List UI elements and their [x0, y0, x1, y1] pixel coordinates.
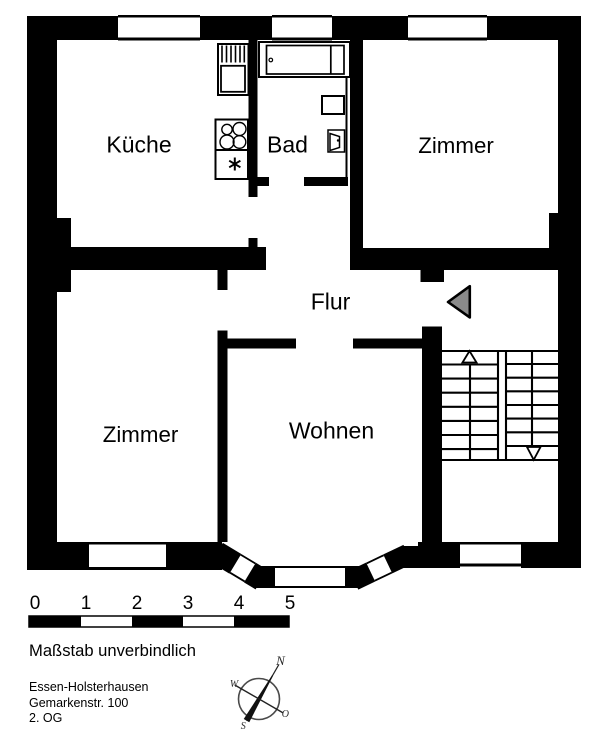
svg-text:N: N	[275, 653, 286, 668]
svg-text:O: O	[282, 709, 289, 720]
svg-text:Essen-Holsterhausen: Essen-Holsterhausen	[29, 680, 149, 694]
svg-text:Zimmer: Zimmer	[103, 422, 179, 447]
svg-text:2. OG: 2. OG	[29, 711, 62, 725]
svg-text:Bad: Bad	[267, 132, 308, 158]
svg-text:3: 3	[183, 593, 194, 614]
svg-text:Gemarkenstr. 100: Gemarkenstr. 100	[29, 696, 128, 710]
svg-text:2: 2	[132, 593, 143, 614]
svg-text:Maßstab unverbindlich: Maßstab unverbindlich	[29, 641, 196, 660]
svg-text:Wohnen: Wohnen	[289, 418, 374, 444]
svg-text:Zimmer: Zimmer	[418, 133, 494, 158]
svg-text:0: 0	[30, 593, 41, 614]
svg-text:Flur: Flur	[311, 289, 351, 315]
svg-text:5: 5	[285, 593, 296, 614]
svg-text:4: 4	[234, 593, 245, 614]
svg-text:S: S	[241, 721, 246, 732]
svg-text:1: 1	[81, 593, 92, 614]
svg-text:Küche: Küche	[106, 132, 171, 158]
